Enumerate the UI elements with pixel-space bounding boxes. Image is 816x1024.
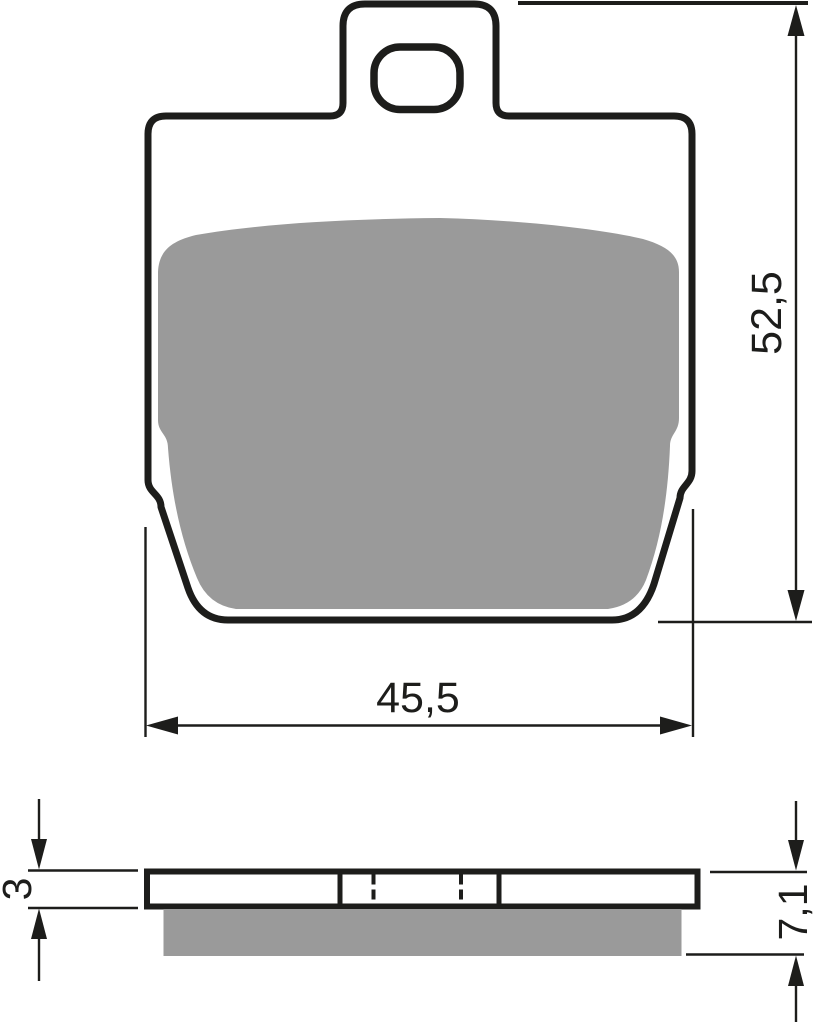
svg-text:7,1: 7,1	[770, 884, 816, 941]
svg-text:52,5: 52,5	[743, 271, 791, 355]
svg-text:45,5: 45,5	[376, 674, 460, 722]
svg-text:3: 3	[0, 878, 40, 901]
